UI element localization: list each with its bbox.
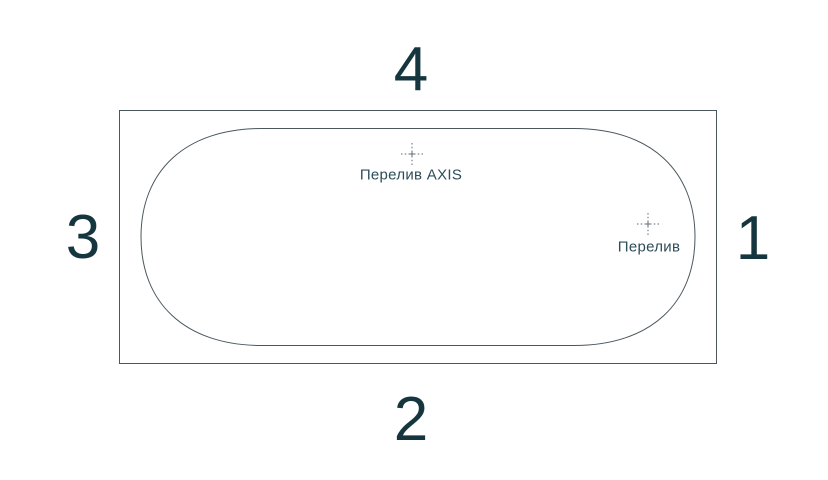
center-mark-icon (637, 213, 659, 235)
side-number-right: 1 (736, 208, 770, 270)
tub-basin-outline (141, 129, 695, 346)
side-number-bottom: 2 (394, 389, 428, 451)
bathtub-schematic: 4 2 3 1 Перелив AXIS Перелив (0, 0, 828, 480)
overflow-label: Перелив (618, 239, 681, 256)
center-mark-icon (401, 143, 423, 165)
side-number-left: 3 (66, 207, 100, 269)
outer-rim-rect (120, 111, 717, 364)
overflow-axis-label: Перелив AXIS (360, 167, 462, 184)
side-number-top: 4 (394, 39, 428, 101)
